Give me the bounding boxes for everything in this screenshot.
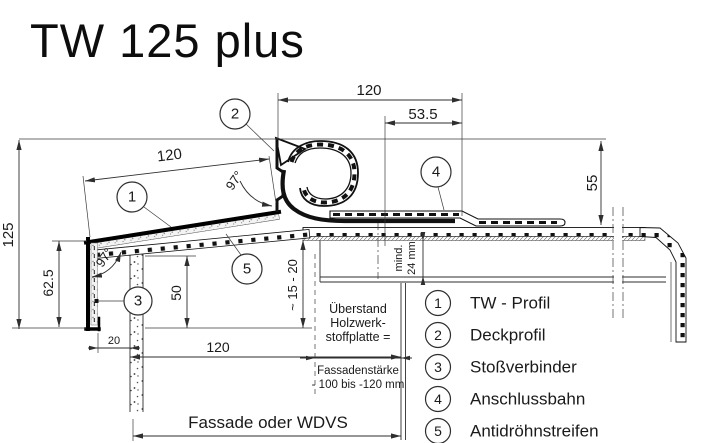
drawing-page: TW 125 plus xyxy=(0,0,702,443)
callout-3: 3 xyxy=(134,293,142,310)
dim-board-min-b: 24 mm xyxy=(406,241,418,275)
legend-label-anschlussbahn: Anschlussbahn xyxy=(470,390,585,409)
callout-2: 2 xyxy=(231,106,239,123)
membrane-underlay xyxy=(303,237,645,241)
break-gap xyxy=(614,220,622,292)
legend-item-4: 4 Anschlussbahn xyxy=(426,387,586,412)
page-title: TW 125 plus xyxy=(30,14,305,67)
overhang-note-3: stoffplatte = xyxy=(326,330,391,344)
dim-overhang-width: 120 xyxy=(206,339,230,355)
legend-item-5: 5 Antidröhnstreifen xyxy=(426,419,599,443)
legend-label-tw-profil: TW - Profil xyxy=(470,294,550,313)
legend: 1 TW - Profil 2 Deckprofil 3 Stoßverbind… xyxy=(426,291,599,443)
dimensions: 120 53.5 55 125 62.5 120 97° 97° 20 50 1… xyxy=(0,82,601,436)
legend-item-1: 1 TW - Profil xyxy=(426,291,551,316)
technical-drawing: TW 125 plus xyxy=(0,0,702,443)
dim-wall-drop: 50 xyxy=(168,285,184,301)
callout-5: 5 xyxy=(243,261,251,278)
fascia-assembly xyxy=(86,212,310,330)
callout-4: 4 xyxy=(432,164,440,181)
dim-front-lip: 20 xyxy=(108,335,120,347)
dim-fascia-height: 62.5 xyxy=(40,269,56,296)
overhang-note-1: Überstand xyxy=(329,302,387,316)
wall-fill xyxy=(131,252,143,412)
dim-right-height: 55 xyxy=(584,175,601,192)
dim-slope-width: 120 xyxy=(156,146,183,166)
legend-num-5: 5 xyxy=(434,423,442,439)
dim-board-min-a: mind. xyxy=(393,245,405,272)
roof-deck xyxy=(303,228,666,283)
legend-num-3: 3 xyxy=(434,359,442,375)
callout-1: 1 xyxy=(128,189,136,206)
overhang-note-2: Holzwerk- xyxy=(330,316,386,330)
wall-fassade xyxy=(130,252,143,412)
dim-top-width: 120 xyxy=(356,82,381,99)
thickness-note-1: Fassadenstärke xyxy=(317,365,399,377)
dim-gap: ~ 15 - 20 xyxy=(285,259,300,311)
roof-membrane xyxy=(303,228,645,237)
roof-edge-right xyxy=(640,228,686,343)
profile-interlock xyxy=(276,138,565,226)
legend-label-stossverbinder: Stoßverbinder xyxy=(470,358,577,377)
callout-3-tick xyxy=(95,299,99,303)
dim-top-offset: 53.5 xyxy=(408,106,437,123)
sloped-board xyxy=(95,229,310,258)
legend-item-3: 3 Stoßverbinder xyxy=(426,355,578,380)
thickness-note-2: - 100 bis -120 mm xyxy=(312,379,405,391)
legend-label-deckprofil: Deckprofil xyxy=(470,326,546,345)
legend-item-2: 2 Deckprofil xyxy=(426,323,546,348)
dim-overall-height: 125 xyxy=(0,222,17,247)
callouts: 1 2 3 4 5 xyxy=(95,99,452,315)
dim-angle-top: 97° xyxy=(223,168,247,193)
legend-num-1: 1 xyxy=(434,295,442,311)
legend-num-4: 4 xyxy=(434,391,442,407)
edge-membrane-wrap xyxy=(640,228,686,343)
legend-label-antidroehnstreifen: Antidröhnstreifen xyxy=(470,422,599,441)
facade-label: Fassade oder WDVS xyxy=(188,413,348,432)
legend-num-2: 2 xyxy=(434,327,442,343)
